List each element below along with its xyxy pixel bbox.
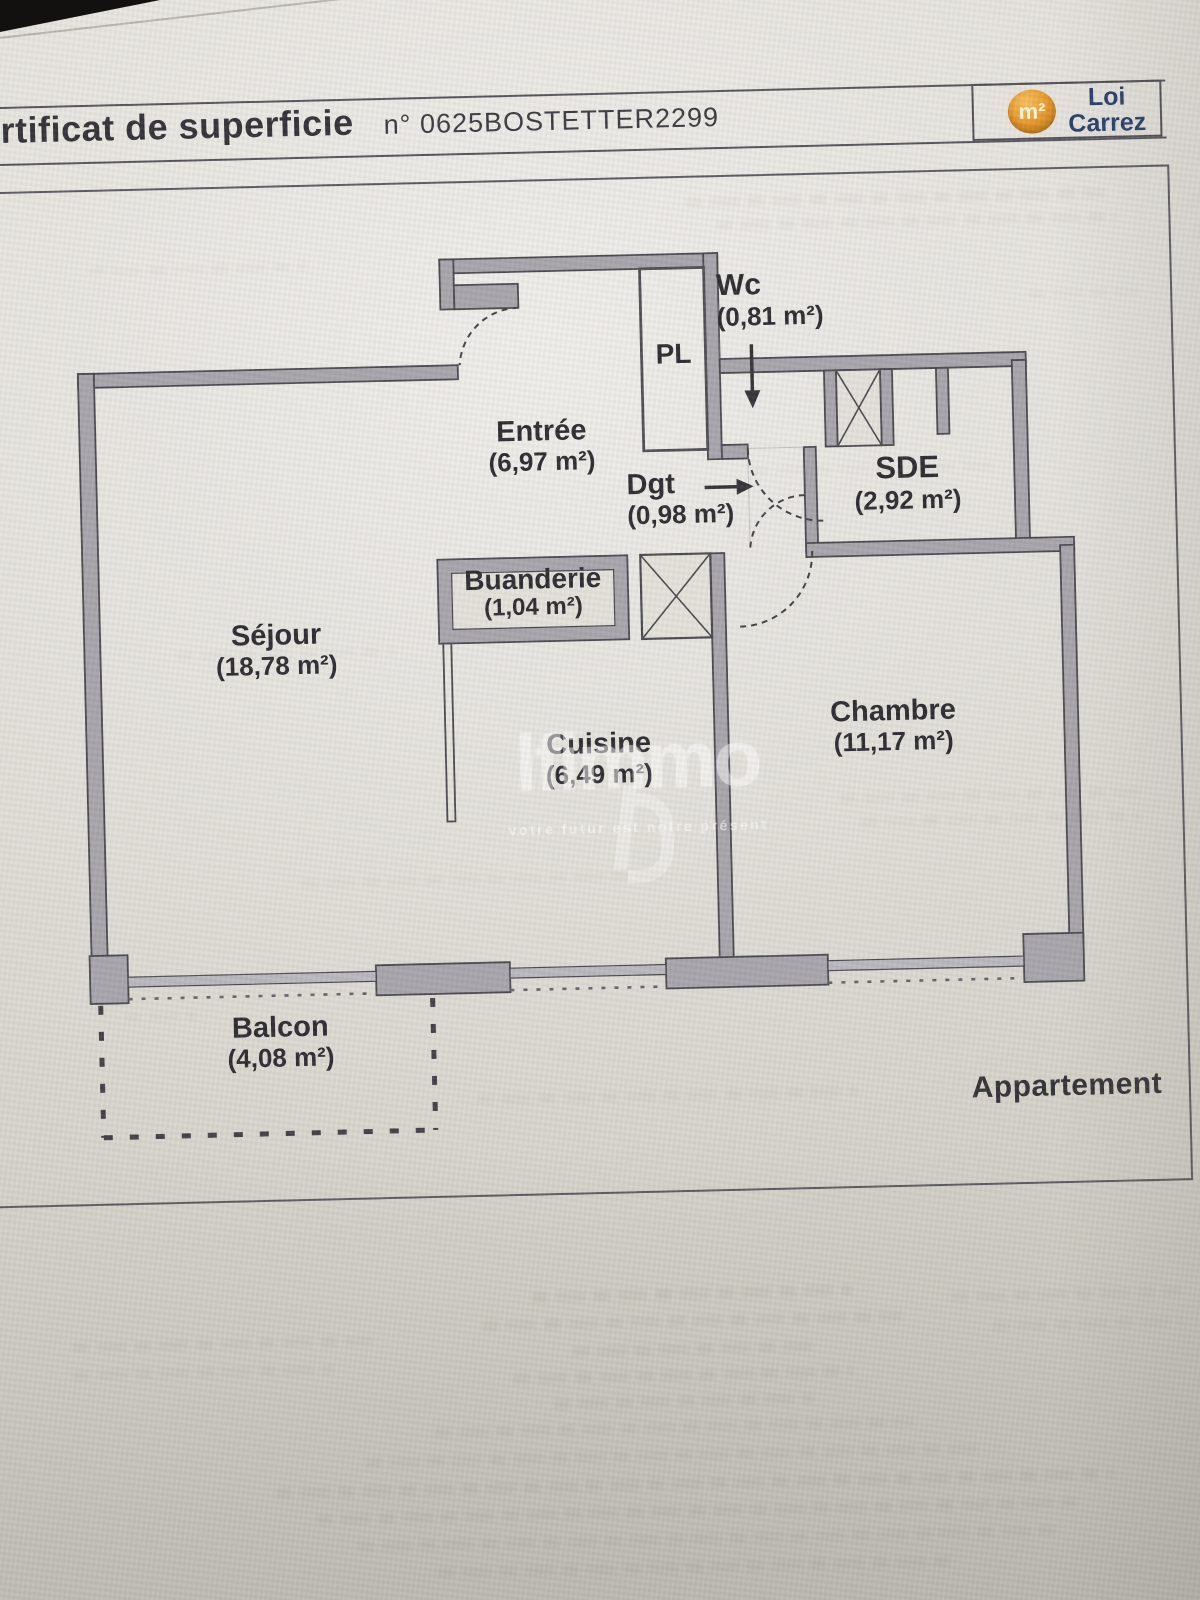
down-arrow-icon <box>743 344 761 408</box>
room-label-buanderie: Buanderie (1,04 m²) <box>442 561 623 623</box>
kitchen-partition <box>443 643 455 821</box>
room-label-entree: Entrée (6,97 m²) <box>461 413 622 478</box>
room-label-dgt: Dgt (0,98 m²) <box>626 466 777 531</box>
shaft-hatch-wc <box>836 369 882 446</box>
photo-background-corner <box>0 0 160 32</box>
room-label-pl: PL <box>643 337 704 370</box>
windows <box>128 956 1024 999</box>
document-content: ertificat de superficie n° 0625BOSTETTER… <box>0 0 1200 1600</box>
room-label-sde: SDE (2,92 m²) <box>827 449 988 517</box>
apartment-label: Appartement <box>942 1066 1193 1106</box>
room-label-balcon: Balcon (4,08 m²) <box>200 1010 361 1075</box>
room-label-cuisine: Cuisine (6,49 m²) <box>518 726 679 791</box>
shaft-hatch-buanderie <box>640 553 712 639</box>
room-label-wc: Wc (0,81 m²) <box>716 266 867 332</box>
room-label-chambre: Chambre (11,17 m²) <box>798 693 989 759</box>
photographed-certificate-page: ertificat de superficie n° 0625BOSTETTER… <box>0 0 1200 1600</box>
floor-plan-svg <box>0 0 1200 1600</box>
